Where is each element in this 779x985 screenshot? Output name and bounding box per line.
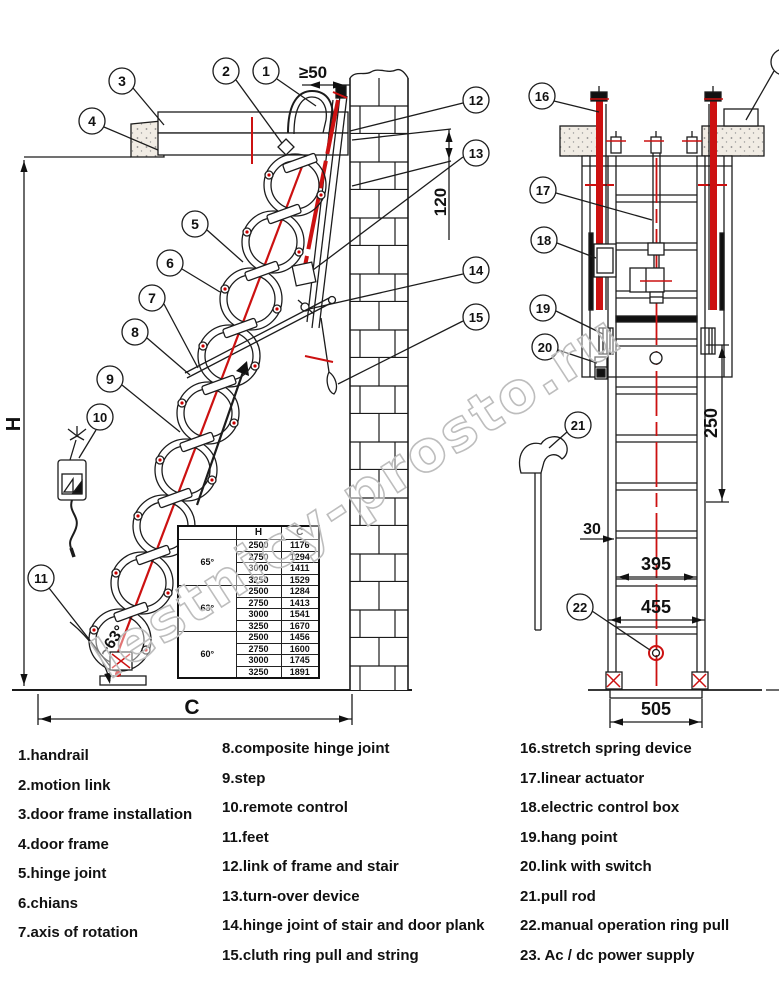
legend-column-1: 1.handrail 2.motion link 3.door frame in… — [18, 741, 192, 948]
hinge-hole — [650, 352, 662, 364]
table-cell: 63° — [178, 586, 236, 632]
table-cell: 3250 — [236, 666, 281, 678]
legend-item: 21.pull rod — [520, 882, 729, 912]
table-cell: 60° — [178, 632, 236, 679]
rivet — [221, 285, 229, 293]
table-cell: 3000 — [236, 655, 281, 667]
table-cell: C — [281, 526, 319, 540]
dim-H-label: H — [3, 417, 25, 431]
electric-control-box — [594, 244, 616, 277]
legend-column-3: 16.stretch spring device 17.linear actua… — [520, 734, 729, 970]
table-cell: 2500 — [236, 586, 281, 598]
front-view-diagram — [519, 49, 779, 728]
ladder-drawing: 1 2 3 4 5 6 7 8 9 10 11 12 13 14 15 16 1… — [0, 0, 779, 735]
rivet — [265, 171, 273, 179]
legend-item: 9.step — [222, 764, 485, 794]
table-cell — [178, 526, 236, 540]
legend-item: 4.door frame — [18, 830, 192, 860]
legend-item: 17.linear actuator — [520, 764, 729, 794]
base — [588, 672, 779, 698]
power-supply-box — [724, 109, 758, 126]
callout-number: 15 — [469, 310, 483, 325]
dim-C-label: C — [184, 696, 199, 719]
door-frame-plank — [158, 112, 348, 164]
table-cell: 1529 — [281, 574, 319, 586]
callout-number: 7 — [148, 290, 156, 306]
callout-number: 19 — [536, 301, 550, 316]
legend-item: 16.stretch spring device — [520, 734, 729, 764]
table-cell: 1600 — [281, 643, 319, 655]
legend-item: 2.motion link — [18, 771, 192, 801]
callout-number: 13 — [469, 146, 483, 161]
legend-item: 23. Ac / dc power supply — [520, 941, 729, 971]
dim-505-label: 505 — [641, 699, 671, 719]
brick-wall — [350, 70, 408, 690]
legend-item: 12.link of frame and stair — [222, 852, 485, 882]
legend-item: 6.chians — [18, 889, 192, 919]
rivet — [90, 626, 98, 634]
legend-item: 3.door frame installation — [18, 800, 192, 830]
table-cell: 2750 — [236, 551, 281, 563]
callout-number: 21 — [571, 418, 585, 433]
table-header-row: H C — [178, 526, 319, 540]
legend-item: 7.axis of rotation — [18, 918, 192, 948]
legend-item: 10.remote control — [222, 793, 485, 823]
callout-number: 6 — [166, 255, 174, 271]
table-cell: 2500 — [236, 540, 281, 552]
rivet — [243, 228, 251, 236]
legend-item: 5.hinge joint — [18, 859, 192, 889]
ceiling-slab — [560, 126, 600, 156]
table-cell: 1891 — [281, 666, 319, 678]
callout-number: 8 — [131, 324, 139, 340]
frame-bolts — [606, 131, 702, 153]
rivet — [156, 456, 164, 464]
dim-395-label: 395 — [641, 554, 671, 574]
table-cell: 1413 — [281, 597, 319, 609]
hang-point — [701, 328, 715, 354]
legend-item: 15.cluth ring pull and string — [222, 941, 485, 971]
link-with-switch — [595, 357, 607, 379]
table-cell: 3250 — [236, 574, 281, 586]
table-cell: 1294 — [281, 551, 319, 563]
diagram-canvas: 1 2 3 4 5 6 7 8 9 10 11 12 13 14 15 16 1… — [0, 0, 779, 985]
dim-30-label: 30 — [583, 521, 601, 538]
rivet — [199, 342, 207, 350]
rivet — [134, 512, 142, 520]
table-cell: 3000 — [236, 563, 281, 575]
callout-number: 4 — [88, 113, 96, 129]
legend-item: 22.manual operation ring pull — [520, 911, 729, 941]
dim-120-label: 120 — [431, 188, 450, 216]
turn-over-device — [292, 262, 316, 286]
table-cell: 3000 — [236, 609, 281, 621]
table-cell: 65° — [178, 540, 236, 586]
callout-number: 16 — [535, 89, 549, 104]
hang-point — [599, 328, 613, 354]
pull-string — [305, 318, 336, 394]
callout-number: 11 — [34, 571, 48, 586]
table-cell: 1456 — [281, 632, 319, 644]
pull-rod — [519, 437, 567, 630]
table-row: 63°25001284 — [178, 586, 319, 598]
table-cell: 1541 — [281, 609, 319, 621]
table-cell: 3250 — [236, 620, 281, 632]
legend-column-2: 8.composite hinge joint 9.step 10.remote… — [222, 734, 485, 970]
table-cell: 1176 — [281, 540, 319, 552]
legend-item: 18.electric control box — [520, 793, 729, 823]
callout-number: 5 — [191, 216, 199, 232]
callout-number: 18 — [537, 233, 551, 248]
callout-number: 3 — [118, 73, 126, 89]
legend-item: 20.link with switch — [520, 852, 729, 882]
dim-gap50-label: ≥50 — [299, 63, 327, 82]
table-cell: 1670 — [281, 620, 319, 632]
legend-item: 1.handrail — [18, 741, 192, 771]
callout-number: 2 — [222, 63, 230, 79]
callout-number: 10 — [93, 410, 107, 425]
legend-item: 13.turn-over device — [222, 882, 485, 912]
table-cell: H — [236, 526, 281, 540]
callout-number: 12 — [469, 93, 483, 108]
table-cell: 2750 — [236, 597, 281, 609]
legend-item: 11.feet — [222, 823, 485, 853]
callout-number: 14 — [469, 263, 484, 278]
callout-number: 17 — [536, 183, 550, 198]
remote-control — [58, 426, 86, 557]
dim-455-label: 455 — [641, 597, 671, 617]
table-row: 65°25001176 — [178, 540, 319, 552]
table-cell: 1411 — [281, 563, 319, 575]
legend-item: 8.composite hinge joint — [222, 734, 485, 764]
rivet — [112, 569, 120, 577]
legend-item: 14.hinge joint of stair and door plank — [222, 911, 485, 941]
table-row: 60°25001456 — [178, 632, 319, 644]
callout-number: 20 — [538, 340, 552, 355]
legend-item: 19.hang point — [520, 823, 729, 853]
callout-number: 1 — [262, 63, 270, 79]
table-cell: 1745 — [281, 655, 319, 667]
dim-250-label: 250 — [701, 408, 721, 438]
callout-number: 9 — [106, 371, 114, 387]
table-cell: 2500 — [236, 632, 281, 644]
table-cell: 1284 — [281, 586, 319, 598]
rivet — [178, 399, 186, 407]
table-cell: 2750 — [236, 643, 281, 655]
callout-number: 22 — [573, 600, 587, 615]
dimension-table: H C 65°25001176 27501294 30001411 325015… — [177, 525, 320, 679]
